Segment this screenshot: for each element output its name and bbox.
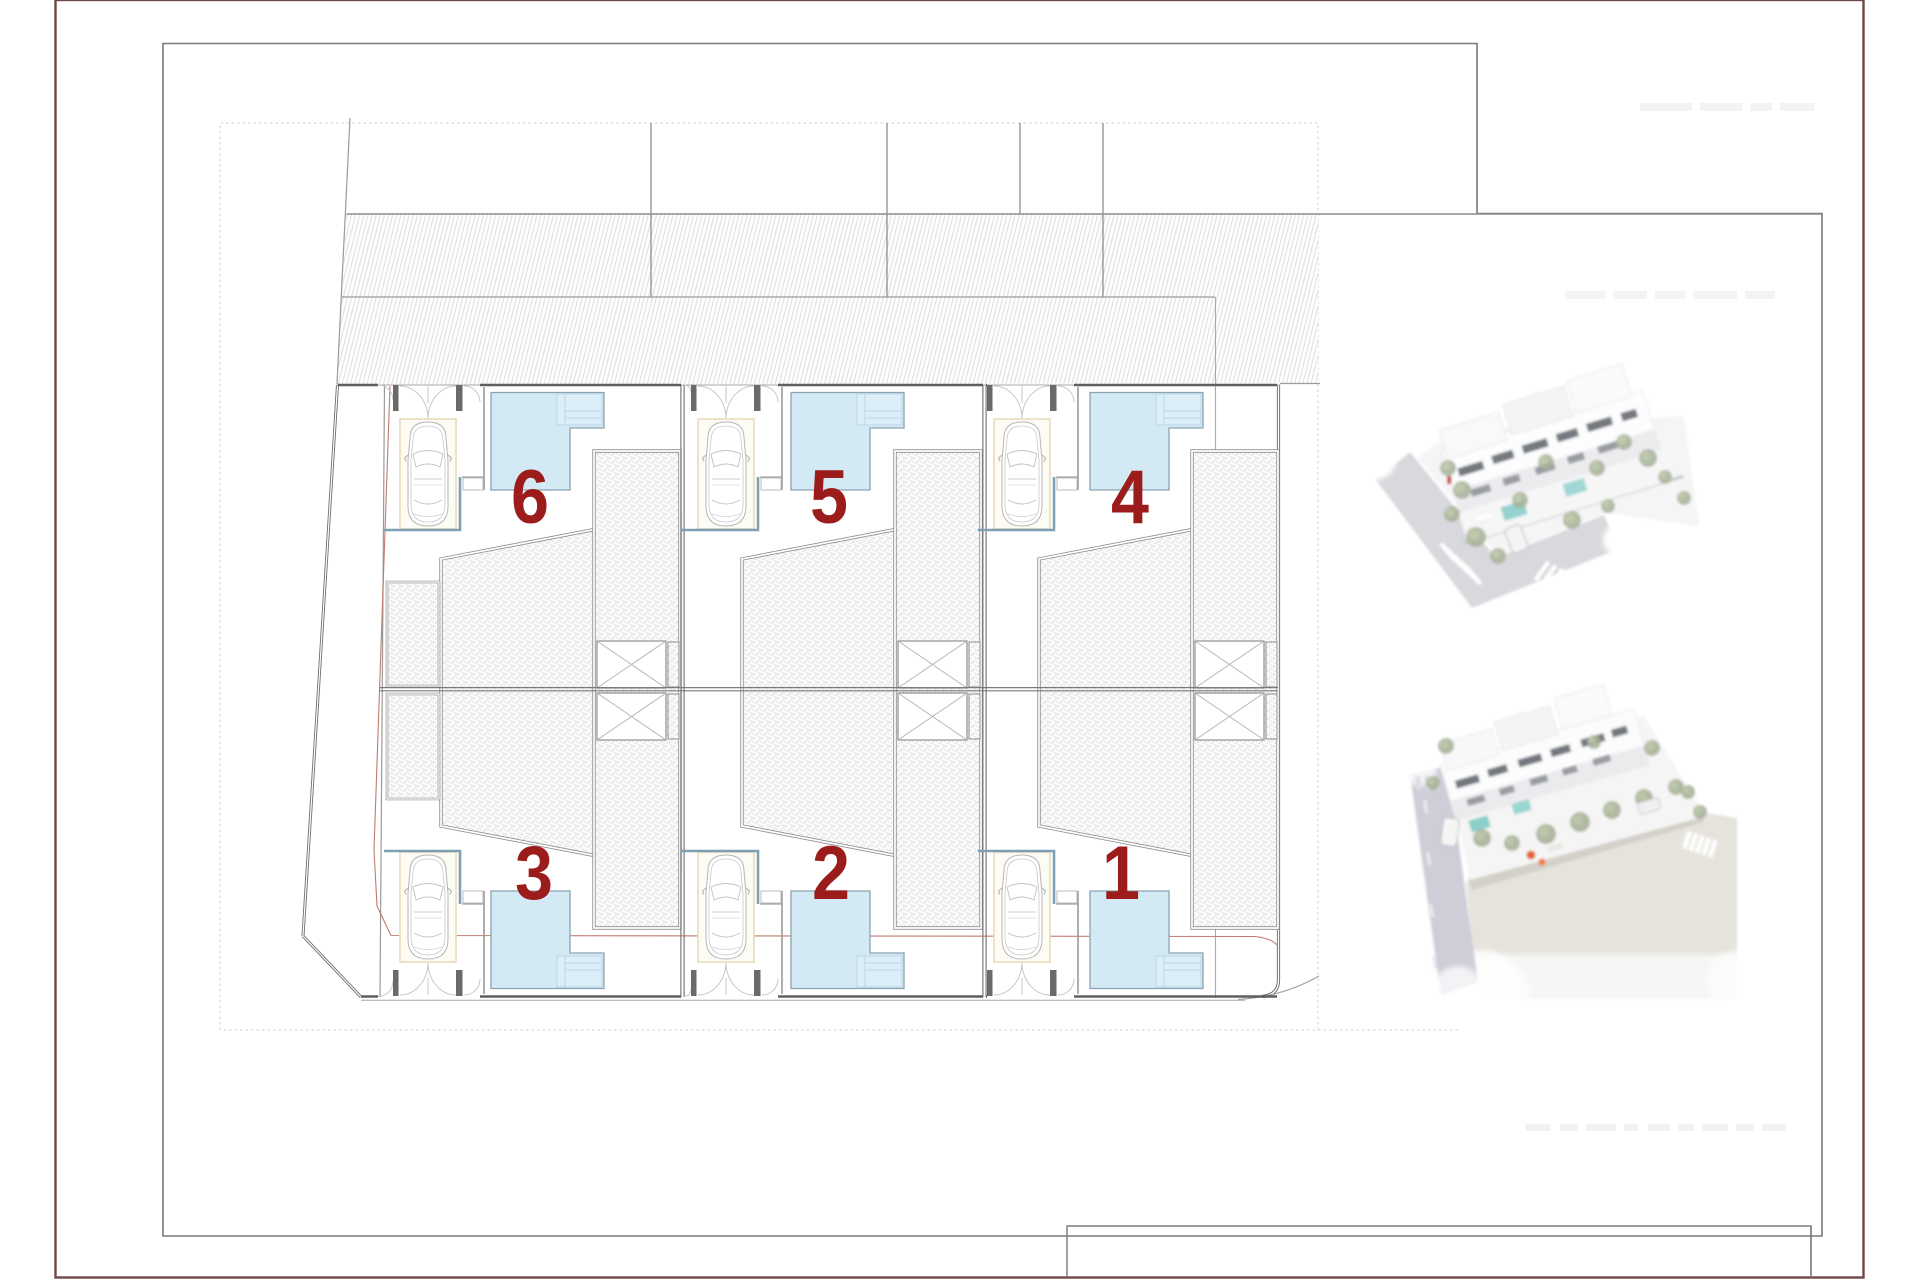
svg-text:3: 3 <box>515 831 553 916</box>
svg-text:1: 1 <box>1102 831 1140 916</box>
svg-text:4: 4 <box>1111 455 1149 540</box>
svg-text:2: 2 <box>812 831 850 916</box>
svg-text:6: 6 <box>511 455 549 540</box>
svg-text:5: 5 <box>810 455 848 540</box>
